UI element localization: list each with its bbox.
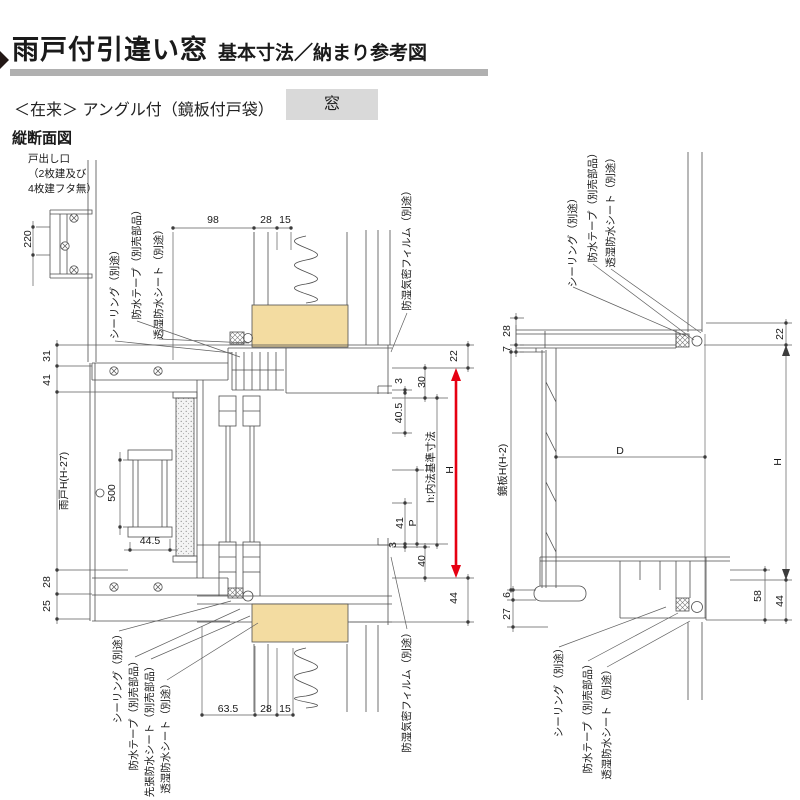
page: 雨戸付引違い窓基本寸法／納まり参考図 ＜在来＞ アングル付（鏡板付戸袋） 窓 縦… [0, 0, 800, 800]
panel-bottom-cap [534, 586, 586, 601]
rail-flange-top [128, 450, 172, 460]
screw-icon [70, 266, 78, 274]
door-outlet-lines [88, 160, 96, 362]
case-hole [96, 489, 104, 497]
section-drawing [0, 0, 800, 800]
dimension-ticks [31, 225, 787, 716]
shutter-case [90, 363, 230, 621]
interior-jamb [378, 345, 392, 625]
screw-icon [61, 242, 69, 250]
wall-bottom-right [688, 622, 702, 700]
screw-icon [110, 367, 118, 375]
mirror-board-panel [536, 348, 556, 588]
screw-icon [70, 214, 78, 222]
case-head-right [516, 325, 702, 352]
right-drawing-structure [516, 152, 730, 700]
dimension-lines [33, 221, 792, 715]
wall-top-right [688, 152, 702, 332]
left-drawing-structure [50, 160, 392, 712]
rail-webs [133, 460, 167, 527]
glass-panes [219, 411, 260, 557]
packing-hatch-sill [228, 588, 243, 598]
storm-shutter-panel [176, 398, 194, 556]
wood-lintel [252, 305, 348, 347]
insulation-top [294, 236, 317, 303]
wood-sill-block [252, 604, 348, 642]
height-dimension-arrow [451, 368, 461, 578]
screw-icon [110, 583, 118, 591]
screw-icon [154, 583, 162, 591]
rail-flange-bottom [128, 527, 172, 537]
fastener-detail-top [244, 334, 253, 343]
packing-hatch-right-bottom [676, 598, 689, 611]
fastener-detail-right-bottom [692, 602, 703, 613]
shutter-top-cap [173, 392, 197, 398]
screw-icon [154, 367, 162, 375]
frame-head [228, 345, 392, 393]
shutter-bottom-cap [173, 556, 197, 562]
fastener-detail-right-top [692, 336, 702, 346]
packing-hatch-right-top [676, 334, 689, 347]
insulation-bottom [294, 648, 317, 708]
